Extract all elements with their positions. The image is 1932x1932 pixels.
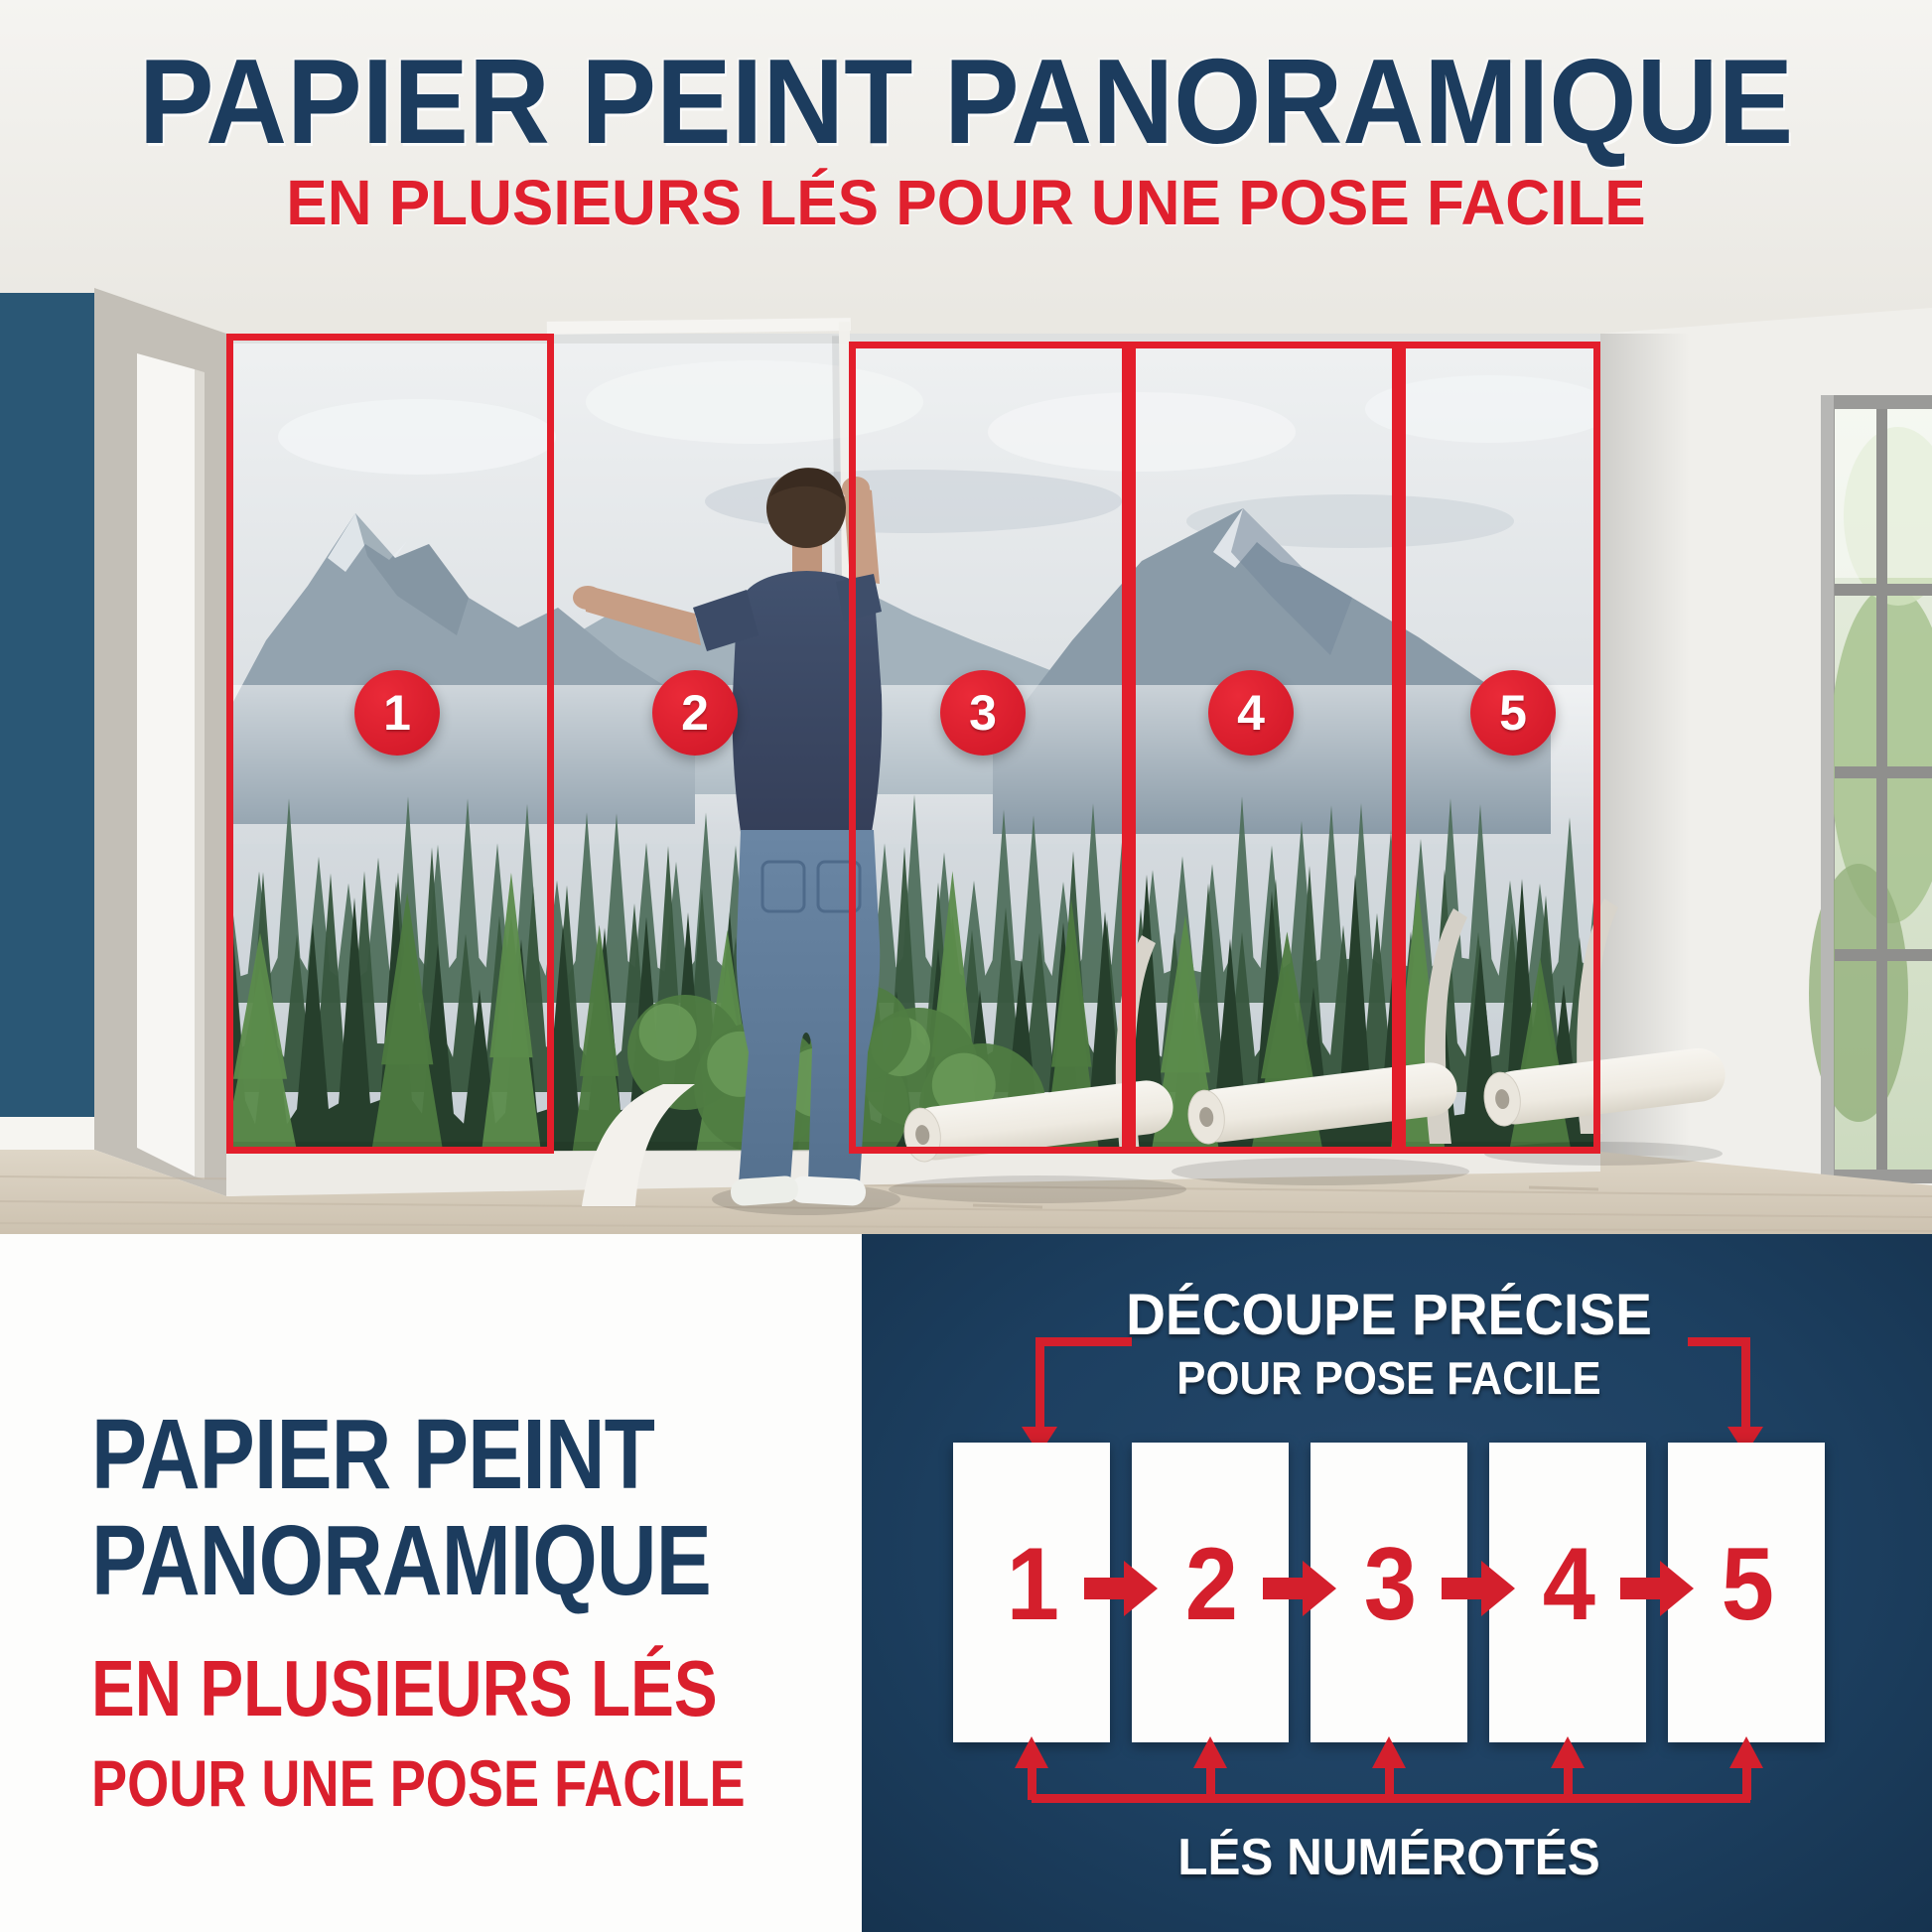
panel-number-badge-4: 4	[1208, 670, 1294, 756]
infographic-canvas: 1 2 3 4 5 PAPIER PEINT PANORAMIQUE EN PL…	[0, 0, 1932, 1932]
connector-stem	[1028, 1766, 1036, 1800]
main-title: PAPIER PEINT PANORAMIQUE	[68, 40, 1864, 163]
arrow-right-icon	[1084, 1561, 1158, 1616]
bottom-subtitle-line1: EN PLUSIEURS LÉS	[91, 1643, 718, 1734]
panel-number-badge-1: 1	[354, 670, 440, 756]
strips-diagram: DÉCOUPE PRÉCISE POUR POSE FACILE 1 2 3 4…	[862, 1234, 1932, 1932]
door	[137, 353, 195, 1176]
panel-number-badge-2: 2	[652, 670, 738, 756]
arrow-up-icon	[1729, 1736, 1763, 1768]
arrow-right-icon	[1442, 1561, 1515, 1616]
panel-number-badge-3: 3	[940, 670, 1026, 756]
left-accent-wall	[0, 293, 94, 1153]
arrow-up-icon	[1551, 1736, 1585, 1768]
connector-stem	[1742, 1766, 1751, 1800]
arrow-up-icon	[1372, 1736, 1406, 1768]
bracket-arrow-left	[1035, 1337, 1132, 1429]
connector-stem	[1206, 1766, 1215, 1800]
arrow-right-icon	[1263, 1561, 1336, 1616]
diagram-caption: LÉS NUMÉROTÉS	[889, 1828, 1890, 1887]
arrow-up-icon	[1193, 1736, 1227, 1768]
bottom-title-line1: PAPIER PEINT	[91, 1398, 654, 1512]
connector-stem	[1385, 1766, 1394, 1800]
connector-stem	[1564, 1766, 1573, 1800]
strip-number: 3	[1316, 1526, 1460, 1644]
left-corner-wall	[94, 288, 226, 1196]
arrow-up-icon	[1015, 1736, 1048, 1768]
strip-number: 5	[1674, 1526, 1818, 1644]
strip-number: 2	[1138, 1526, 1282, 1644]
hero-photo: 1 2 3 4 5 PAPIER PEINT PANORAMIQUE EN PL…	[0, 0, 1932, 1234]
main-subtitle: EN PLUSIEURS LÉS POUR UNE POSE FACILE	[29, 171, 1903, 234]
arrow-right-icon	[1620, 1561, 1694, 1616]
bracket-arrow-right	[1688, 1337, 1750, 1429]
strip-number: 1	[959, 1526, 1103, 1644]
panel-number-badge-5: 5	[1470, 670, 1556, 756]
strip-number: 4	[1495, 1526, 1639, 1644]
bottom-left-text-block: PAPIER PEINT PANORAMIQUE EN PLUSIEURS LÉ…	[0, 1234, 862, 1932]
bottom-subtitle-line2: POUR UNE POSE FACILE	[91, 1745, 746, 1821]
window	[1809, 395, 1932, 1183]
bottom-title-line2: PANORAMIQUE	[91, 1504, 711, 1618]
